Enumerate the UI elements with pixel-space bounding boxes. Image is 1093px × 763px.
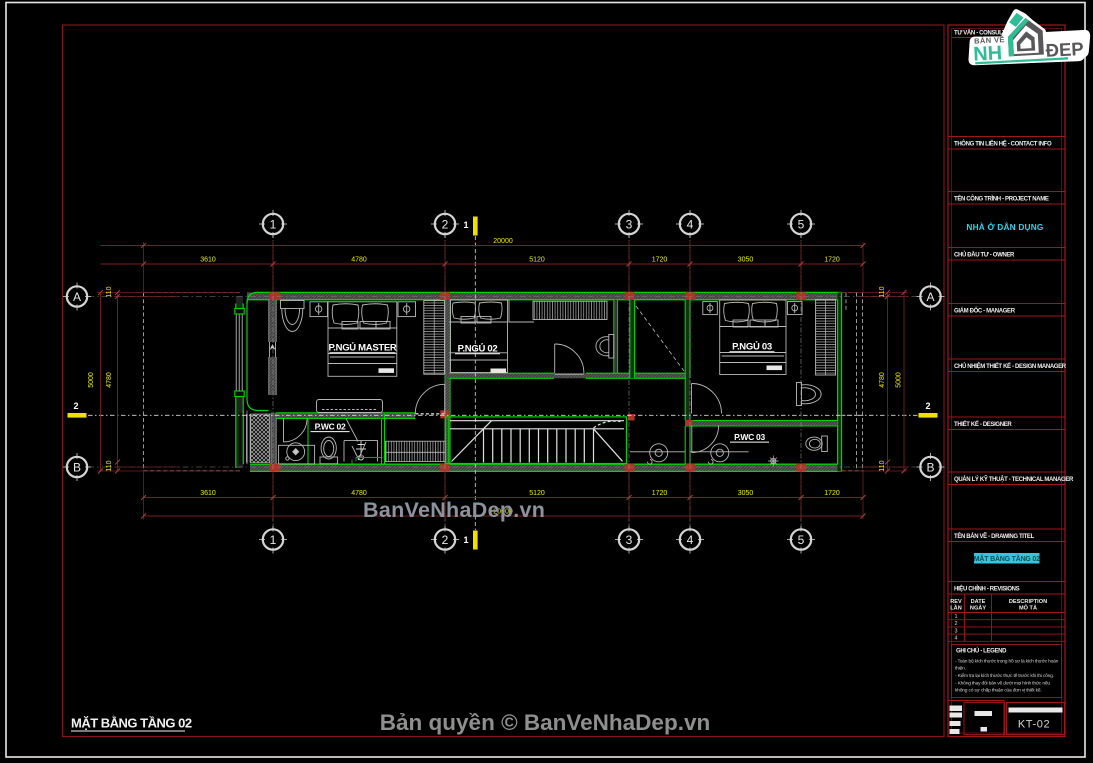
svg-text:4780: 4780 [879,372,886,388]
svg-text:Bản quyền © BanVeNhaDep.vn: Bản quyền © BanVeNhaDep.vn [380,710,710,735]
svg-text:- Kiểm tra lại kích thước thực: - Kiểm tra lại kích thước thực tế trước … [955,672,1054,679]
svg-text:1: 1 [955,614,958,620]
svg-text:5000: 5000 [88,372,95,388]
svg-text:5120: 5120 [529,490,545,497]
svg-text:CHỦ ĐẦU TƯ - OWNER: CHỦ ĐẦU TƯ - OWNER [954,252,1015,259]
svg-text:3050: 3050 [738,490,754,497]
svg-text:LẦN: LẦN [950,605,962,612]
svg-text:P.NGỦ MASTER: P.NGỦ MASTER [328,342,396,354]
svg-text:KT-02: KT-02 [1018,719,1050,731]
svg-text:4780: 4780 [351,257,367,264]
svg-text:DATE: DATE [971,599,986,605]
svg-text:3610: 3610 [200,257,216,264]
svg-text:5: 5 [798,533,805,547]
svg-text:2: 2 [442,218,449,232]
svg-text:A: A [926,290,934,304]
svg-text:4780: 4780 [351,490,367,497]
svg-text:GIÁM ĐỐC - MANAGER: GIÁM ĐỐC - MANAGER [954,308,1016,315]
svg-text:P.WC 03: P.WC 03 [734,432,765,442]
svg-text:1: 1 [463,220,468,230]
svg-text:P.WC 02: P.WC 02 [315,422,346,432]
svg-text:1720: 1720 [652,490,668,497]
svg-text:110: 110 [879,286,886,297]
svg-text:GHI CHÚ - LEGEND: GHI CHÚ - LEGEND [956,648,1007,655]
svg-text:5120: 5120 [529,257,545,264]
svg-text:thiện.: thiện. [955,666,966,672]
svg-text:REV: REV [950,599,962,605]
svg-text:110: 110 [106,460,113,471]
svg-text:P.NGỦ 02: P.NGỦ 02 [458,343,498,355]
svg-text:- Không thay đổi bản vẽ dưới m: - Không thay đổi bản vẽ dưới mọi hình th… [955,680,1050,687]
svg-text:B: B [926,461,934,475]
svg-text:BanVeNhaDep.vn: BanVeNhaDep.vn [363,498,545,522]
svg-text:không có sự chấp thuận của đơn: không có sự chấp thuận của đơn vị thiết … [955,687,1042,694]
svg-text:5: 5 [798,218,805,232]
svg-text:QUẢN LÝ KỸ THUẬT - TECHNICAL M: QUẢN LÝ KỸ THUẬT - TECHNICAL MANAGER [954,476,1074,483]
svg-text:110: 110 [879,460,886,471]
svg-text:1: 1 [463,535,468,545]
svg-text:2: 2 [73,401,78,411]
svg-text:1720: 1720 [652,257,668,264]
svg-text:TÊN CÔNG TRÌNH - PROJECT NAME: TÊN CÔNG TRÌNH - PROJECT NAME [954,195,1049,203]
svg-text:4: 4 [687,218,694,232]
svg-text:2: 2 [442,533,449,547]
svg-text:NGÀY: NGÀY [970,605,986,612]
svg-text:4: 4 [687,533,694,547]
svg-text:1720: 1720 [824,490,840,497]
svg-text:4780: 4780 [106,372,113,388]
svg-text:DESCRIPTION: DESCRIPTION [1009,599,1047,605]
svg-text:NHÀ Ở DÂN DỤNG: NHÀ Ở DÂN DỤNG [966,221,1043,232]
svg-text:4: 4 [955,636,958,642]
svg-text:2: 2 [955,621,958,627]
svg-text:CHỦ NHIỆM THIẾT KẾ - DESIGN MA: CHỦ NHIỆM THIẾT KẾ - DESIGN MANAGER [954,362,1067,370]
svg-text:3: 3 [626,218,633,232]
svg-text:3: 3 [955,628,958,634]
svg-text:MẶT BẰNG TẦNG 02: MẶT BẰNG TẦNG 02 [71,716,192,731]
svg-text:TÊN BẢN VẼ - DRAWING TITEL: TÊN BẢN VẼ - DRAWING TITEL [954,532,1035,540]
svg-text:THIẾT KẾ - DESIGNER: THIẾT KẾ - DESIGNER [954,421,1012,428]
svg-text:1: 1 [270,218,277,232]
svg-text:110: 110 [106,286,113,297]
svg-text:1: 1 [270,533,277,547]
svg-text:3610: 3610 [200,490,216,497]
svg-text:20000: 20000 [493,238,513,245]
svg-text:A: A [73,290,81,304]
svg-text:5000: 5000 [896,372,903,388]
svg-text:P.NGỦ 03: P.NGỦ 03 [732,341,772,353]
svg-text:1720: 1720 [824,257,840,264]
svg-text:HIỆU CHỈNH - REVISIONS: HIỆU CHỈNH - REVISIONS [954,585,1020,593]
svg-text:2: 2 [925,401,930,411]
svg-text:3: 3 [626,533,633,547]
svg-text:MÔ TẢ: MÔ TẢ [1019,604,1037,612]
svg-text:3050: 3050 [738,257,754,264]
svg-text:- Toàn bộ kích thước trong hồ: - Toàn bộ kích thước trong hồ sơ là kích… [955,659,1059,665]
svg-text:B: B [73,461,81,475]
svg-text:THÔNG TIN LIÊN HỆ - CONTACT IN: THÔNG TIN LIÊN HỆ - CONTACT INFO [954,140,1052,148]
